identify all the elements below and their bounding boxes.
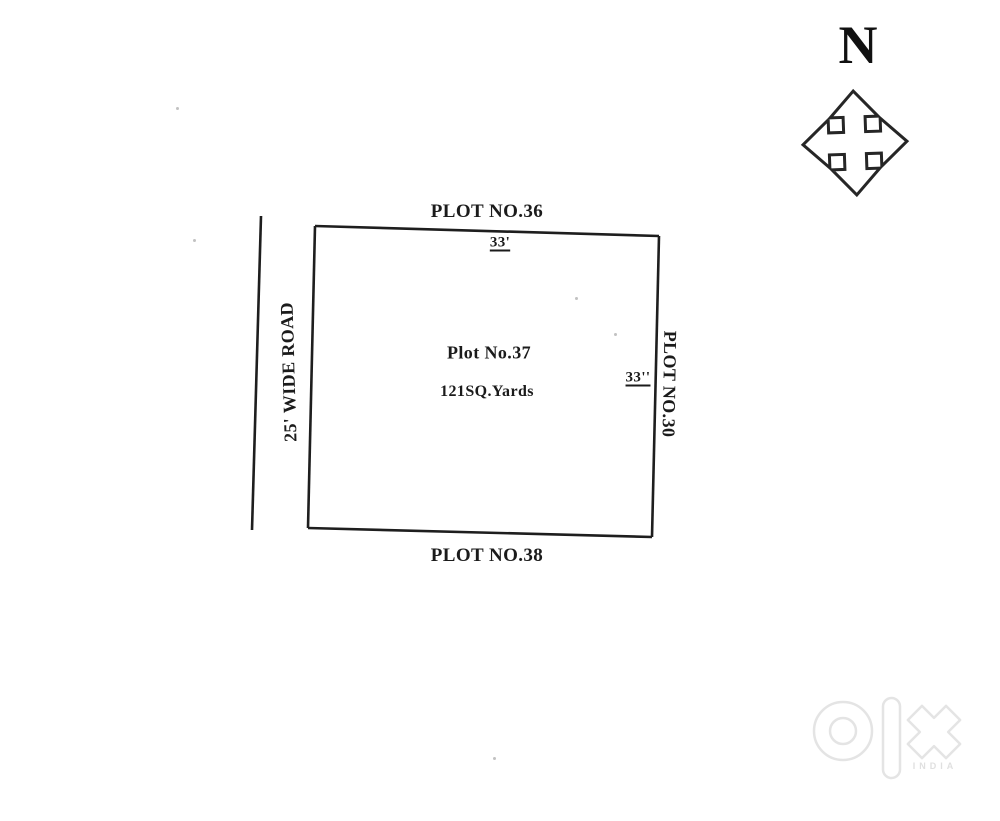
site-plan-drawing bbox=[0, 0, 1000, 821]
road-line bbox=[252, 216, 261, 530]
plot-boundary bbox=[308, 226, 659, 537]
road-label: 25' WIDE ROAD bbox=[277, 302, 302, 442]
top-dimension-label: 33' bbox=[490, 235, 510, 252]
olx-letter-o-inner bbox=[830, 718, 856, 744]
compass-rose-icon bbox=[801, 89, 909, 197]
neighbor-plot-36-label: PLOT NO.36 bbox=[431, 201, 543, 223]
olx-letter-x bbox=[896, 694, 972, 770]
scanned-plot-layout-page: { "page": { "background": "#ffffff", "in… bbox=[0, 0, 1000, 821]
plot-boundary-top-edge bbox=[315, 226, 659, 236]
neighbor-plot-30-label: PLOT NO.30 bbox=[658, 330, 681, 437]
scan-speck bbox=[614, 333, 617, 336]
right-dimension-label: 33'' bbox=[626, 370, 651, 387]
plot-boundary-bottom-edge bbox=[308, 528, 652, 537]
neighbor-plot-38-label: PLOT NO.38 bbox=[431, 545, 543, 567]
compass-north-label: N bbox=[839, 14, 878, 76]
plot-area-label: 121SQ.Yards bbox=[440, 383, 534, 401]
scan-speck bbox=[193, 239, 196, 242]
plot-name-label: Plot No.37 bbox=[447, 343, 531, 364]
plot-boundary-left-edge bbox=[308, 226, 315, 528]
olx-watermark-country-label: INDIA bbox=[913, 761, 958, 771]
scan-speck bbox=[575, 297, 578, 300]
scan-speck bbox=[176, 107, 179, 110]
olx-letter-o-outer bbox=[814, 702, 872, 760]
scan-speck bbox=[493, 757, 496, 760]
olx-letter-l bbox=[883, 698, 900, 778]
